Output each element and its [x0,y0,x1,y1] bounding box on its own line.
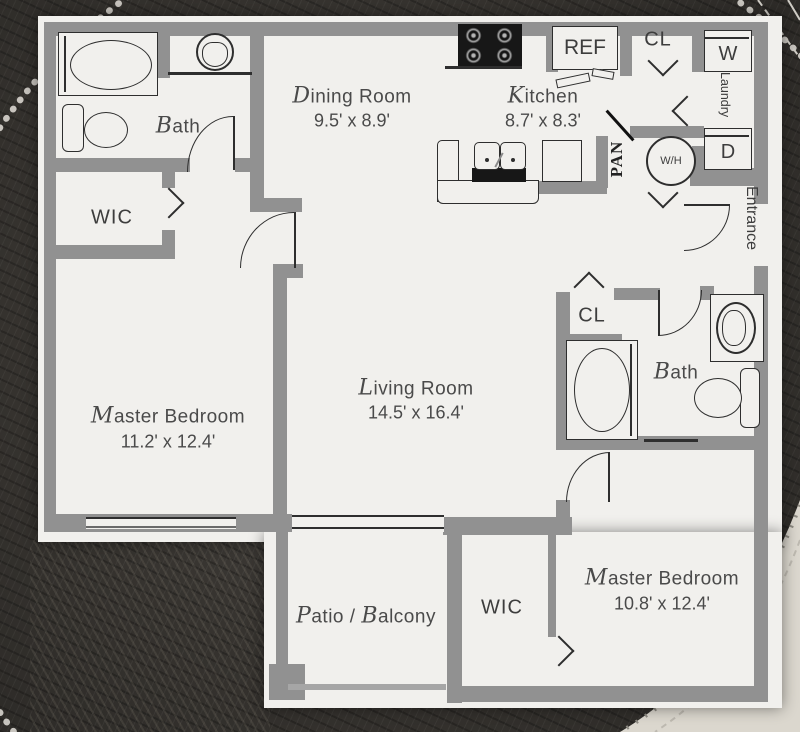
dishwasher-icon [542,140,582,182]
kitchen-label: Kitchen [508,84,579,109]
drain-dot [511,158,515,162]
door-leaf [294,212,296,268]
dryer-line [705,135,749,137]
water-heater-label: W/H [648,138,694,184]
laundry-label: Laundry [718,72,732,117]
dining-room-label: Dining Room [292,84,411,109]
door-leaf [233,116,235,170]
vanity-counter [168,72,252,75]
master-bedroom-right-label: Master Bedroom [585,566,739,591]
bathtub-line [630,344,632,436]
toilet-tank [740,368,760,428]
washer-line [705,37,749,39]
bathtub-line [64,36,66,92]
wall [56,245,175,259]
patio-balcony-label: Patio / Balcony [296,604,436,629]
refrigerator-icon: REF [552,26,618,70]
wall [162,230,175,245]
bathtub-basin [70,40,152,90]
sliding-door-line [292,527,444,529]
sliding-door-line [292,515,444,517]
closet-top-label: CL [644,29,672,52]
wic-upper-label: WIC [91,207,133,230]
patio-post [269,664,305,700]
counter-line [445,66,522,69]
kitchen-sink-right [500,142,526,170]
dining-room-dims: 9.5' x 8.9' [314,111,390,132]
master-bedroom-left-dims: 11.2' x 12.4' [121,432,216,453]
wall [447,686,768,702]
wood-grain-texture [30,540,270,732]
kitchen-counter [437,180,539,204]
washer-icon: W [704,30,752,72]
entrance-label: Entrance [742,186,760,250]
wall [156,22,170,78]
window-line [86,517,236,519]
living-room-label: Living Room [358,376,473,401]
kitchen-dims: 8.7' x 8.3' [505,111,581,132]
toilet-icon [694,378,742,418]
drain-dot [485,158,489,162]
wall-line [644,439,698,442]
wall [235,158,251,172]
sink-surround [472,168,526,182]
wall [44,22,56,532]
closet-right-label: CL [578,305,606,328]
wall [692,22,704,72]
living-room-dims: 14.5' x 16.4' [368,403,464,424]
wall [250,198,302,212]
wall [548,535,556,637]
master-bedroom-left-label: Master Bedroom [91,404,245,429]
stove-icon [458,24,522,68]
toilet-icon [84,112,128,148]
window-line [86,526,236,528]
patio-edge [288,684,446,690]
master-bedroom-right-dims: 10.8' x 12.4' [614,594,710,615]
wall [162,172,175,188]
wall [620,22,632,76]
wall [250,22,264,212]
wall [443,517,572,535]
wic-lower-label: WIC [481,597,523,620]
pantry-label: PAN [607,141,627,178]
wall [273,264,287,516]
refrigerator-label: REF [553,27,617,69]
water-heater-icon: W/H [646,136,696,186]
wall [56,158,190,172]
wall [614,288,660,300]
sink-basin [722,310,746,346]
bathtub-basin [574,348,630,432]
bath-upper-label: Bath [156,114,201,139]
dryer-icon: D [704,128,752,170]
sink-basin [202,42,228,67]
wall [447,517,462,703]
bath-lower-label: Bath [654,360,699,385]
wall [690,168,768,186]
floor-plan-photo: REF W/H W D Dining Room 9.5' x 8.9' Kitc… [0,0,800,732]
toilet-tank [62,104,84,152]
